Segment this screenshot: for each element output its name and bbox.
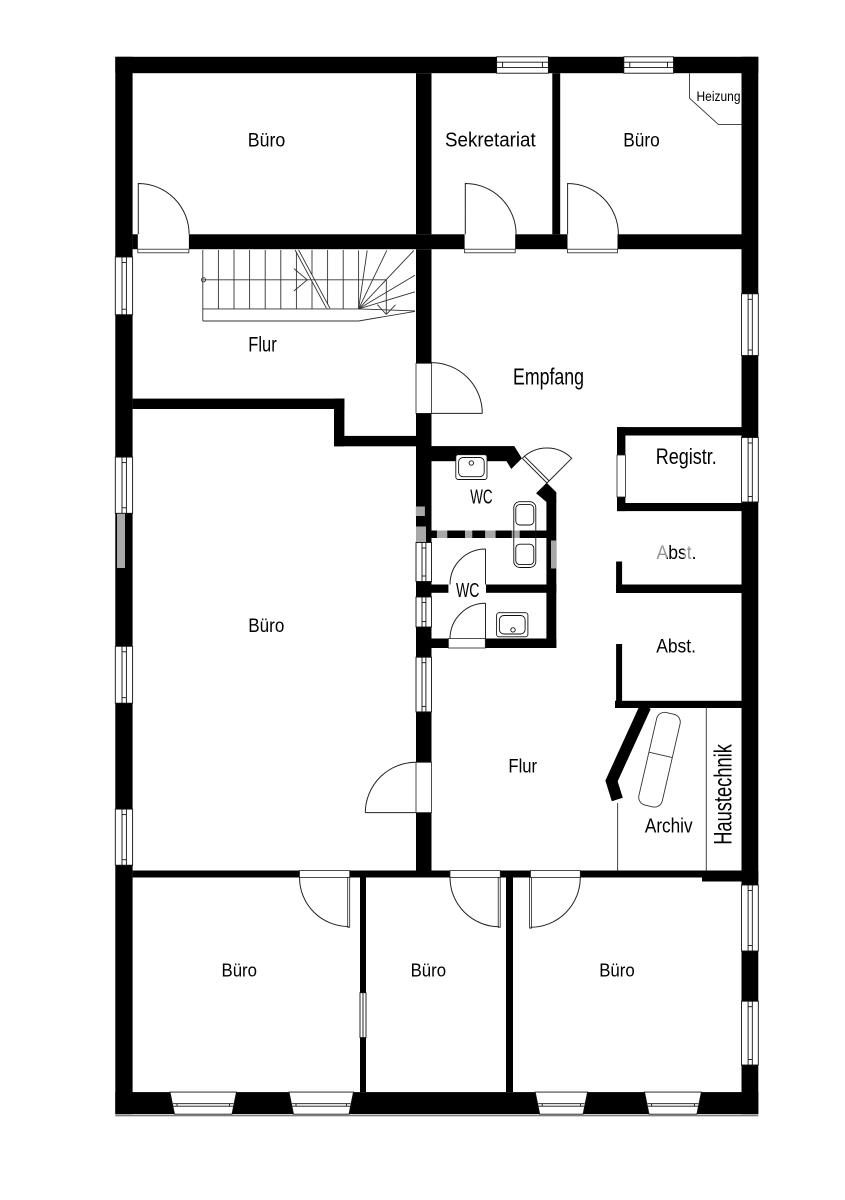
svg-text:Registr.: Registr. (656, 444, 717, 469)
svg-text:Sekretariat: Sekretariat (445, 129, 536, 151)
svg-text:WC: WC (470, 486, 492, 508)
svg-text:Abst.: Abst. (656, 636, 696, 658)
svg-text:WC: WC (456, 580, 479, 602)
svg-text:Büro: Büro (623, 131, 660, 152)
svg-text:Flur: Flur (508, 755, 537, 777)
svg-text:Büro: Büro (248, 131, 285, 152)
svg-text:Flur: Flur (248, 333, 276, 356)
svg-text:Büro: Büro (222, 959, 258, 980)
svg-text:Haustechnik: Haustechnik (709, 744, 737, 845)
svg-text:Empfang: Empfang (513, 364, 584, 390)
svg-text:Büro: Büro (248, 616, 284, 637)
svg-text:Büro: Büro (411, 959, 447, 980)
svg-text:Archiv: Archiv (645, 816, 693, 838)
svg-text:Büro: Büro (599, 959, 635, 980)
svg-text:Heizung: Heizung (697, 89, 741, 104)
